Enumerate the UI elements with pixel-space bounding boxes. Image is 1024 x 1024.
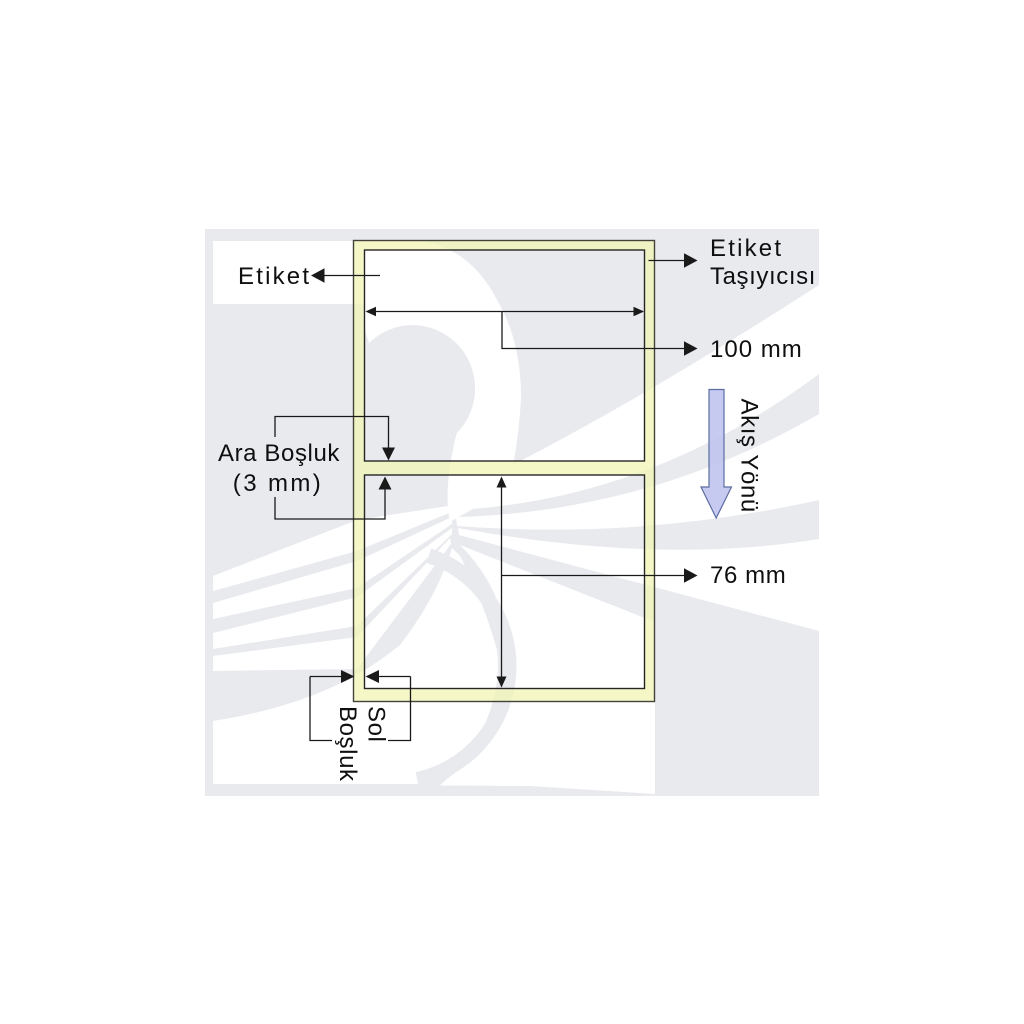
svg-text:Ara Boşluk: Ara Boşluk	[218, 440, 340, 467]
svg-text:Etiket: Etiket	[238, 263, 311, 290]
svg-text:Etiket: Etiket	[710, 235, 783, 262]
svg-text:76 mm: 76 mm	[710, 562, 786, 589]
svg-text:Taşıyıcısı: Taşıyıcısı	[710, 263, 816, 290]
svg-text:Akış Yönü: Akış Yönü	[736, 399, 763, 513]
svg-text:100 mm: 100 mm	[710, 336, 803, 363]
svg-text:(3 mm): (3 mm)	[233, 470, 323, 497]
